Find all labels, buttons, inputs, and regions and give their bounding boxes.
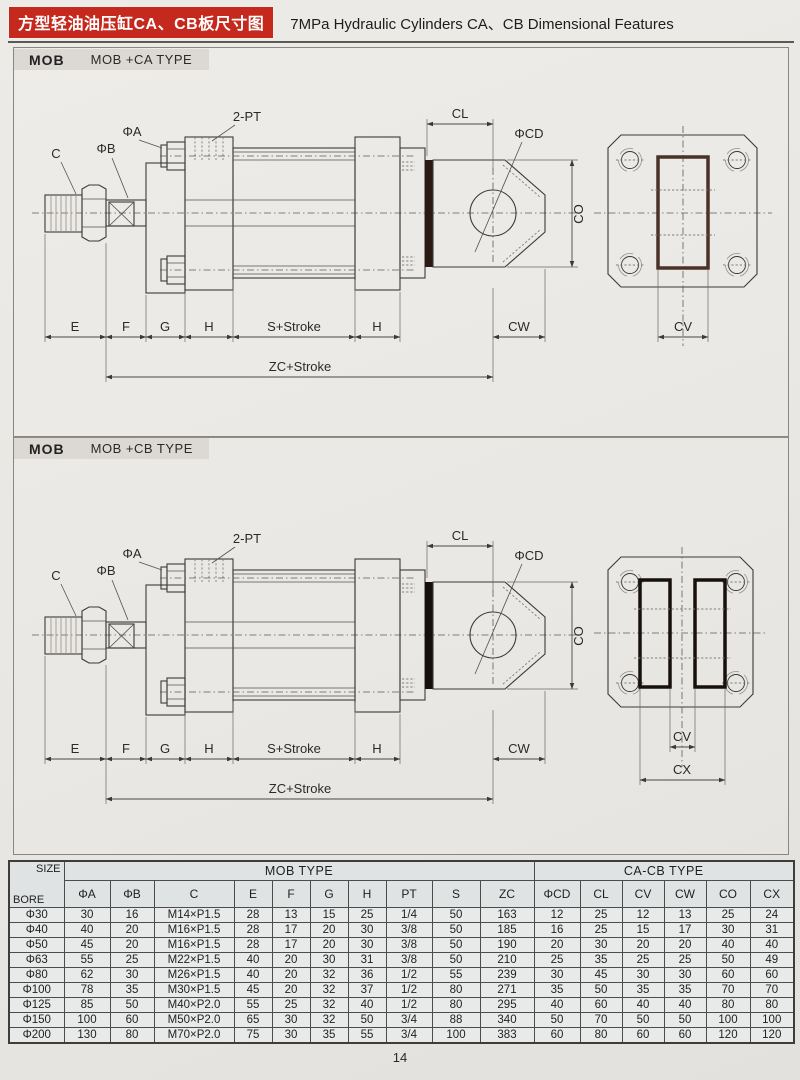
dim-cl: CL <box>452 106 469 121</box>
cell: 30 <box>580 938 622 953</box>
cell: 190 <box>480 938 534 953</box>
cell: M14×P1.5 <box>154 908 234 923</box>
cell: 20 <box>534 938 580 953</box>
cell: 340 <box>480 1013 534 1028</box>
cell: 12 <box>622 908 664 923</box>
cell: 100 <box>64 1013 110 1028</box>
bore-cell: Φ63 <box>9 953 64 968</box>
col-header: S <box>432 881 480 908</box>
label-phi-b: ΦB <box>96 563 115 578</box>
cell: 50 <box>348 1013 386 1028</box>
cell: 50 <box>432 923 480 938</box>
cell: 239 <box>480 968 534 983</box>
cell: 35 <box>622 983 664 998</box>
ca-type-diagram: C ΦB ΦA 2-PT ΦCD CL CO E F <box>14 48 788 437</box>
cell: 80 <box>110 1028 154 1044</box>
cell: 80 <box>432 998 480 1013</box>
dim-cx: CX <box>673 762 691 777</box>
cell: 40 <box>706 938 750 953</box>
cell: 20 <box>110 938 154 953</box>
cell: 40 <box>534 998 580 1013</box>
cell: 20 <box>310 938 348 953</box>
dim-g: G <box>160 319 170 334</box>
cell: 50 <box>432 953 480 968</box>
cell: M16×P1.5 <box>154 938 234 953</box>
ca-end-view: CV <box>594 126 772 346</box>
cell: 1/2 <box>386 998 432 1013</box>
cylinder-side-view-ca: C ΦB ΦA 2-PT ΦCD CL CO E F <box>32 106 586 382</box>
bolt-hole <box>616 149 644 172</box>
cell: 50 <box>664 1013 706 1028</box>
label-phi-a: ΦA <box>122 124 141 139</box>
dim-h: H <box>204 319 213 334</box>
cell: 60 <box>110 1013 154 1028</box>
cell: 1/4 <box>386 908 432 923</box>
col-header: CV <box>622 881 664 908</box>
cell: 3/8 <box>386 923 432 938</box>
section-cb-type: C ΦB ΦA 2-PT ΦCD CL CO E F G H <box>13 436 789 855</box>
table-row: Φ63 5525M22×P1.5402030313/85021025352525… <box>9 953 794 968</box>
cell: 17 <box>272 938 310 953</box>
cell: 25 <box>580 923 622 938</box>
label-2pt: 2-PT <box>233 109 261 124</box>
cell: 30 <box>310 953 348 968</box>
dim-cw: CW <box>508 319 530 334</box>
corner-size-label: SIZE <box>36 863 60 875</box>
cell: 24 <box>750 908 794 923</box>
cell: 28 <box>234 938 272 953</box>
cell: 28 <box>234 908 272 923</box>
corner-bore-label: BORE <box>13 894 44 906</box>
col-header: F <box>272 881 310 908</box>
cell: 25 <box>110 953 154 968</box>
page-title-en: 7MPa Hydraulic Cylinders CA、CB Dimension… <box>290 13 673 34</box>
group-header-mob-type: MOB TYPE <box>64 861 534 881</box>
col-header: E <box>234 881 272 908</box>
col-header: CL <box>580 881 622 908</box>
cb-plate-bar <box>425 582 433 689</box>
cell: 13 <box>664 908 706 923</box>
section-label-bar: MOB MOB +CB TYPE <box>14 438 209 459</box>
cell: 31 <box>348 953 386 968</box>
table-row: Φ80 6230M26×P1.5402032361/25523930453030… <box>9 968 794 983</box>
cell: 65 <box>234 1013 272 1028</box>
cell: 20 <box>110 923 154 938</box>
cell: 80 <box>750 998 794 1013</box>
page-header: 方型轻油油压缸CA、CB板尺寸图 7MPa Hydraulic Cylinder… <box>8 6 794 39</box>
bore-cell: Φ80 <box>9 968 64 983</box>
rod-thread-hatch <box>51 195 76 232</box>
cell: 70 <box>580 1013 622 1028</box>
col-header: ΦA <box>64 881 110 908</box>
dim-zc-stroke: ZC+Stroke <box>269 781 332 796</box>
cell: 25 <box>348 908 386 923</box>
bore-cell: Φ50 <box>9 938 64 953</box>
col-header: CO <box>706 881 750 908</box>
cell: 16 <box>534 923 580 938</box>
col-header: CW <box>664 881 706 908</box>
cell: 80 <box>432 983 480 998</box>
col-header: H <box>348 881 386 908</box>
cell: 100 <box>432 1028 480 1044</box>
label-c: C <box>51 146 60 161</box>
cell: 50 <box>580 983 622 998</box>
cell: 1/2 <box>386 968 432 983</box>
page-number: 14 <box>0 1050 800 1065</box>
dim-s-stroke: S+Stroke <box>267 741 321 756</box>
cell: 32 <box>310 968 348 983</box>
type-label: MOB +CA TYPE <box>91 52 193 67</box>
cell: 30 <box>622 968 664 983</box>
cell: 25 <box>664 953 706 968</box>
cell: 120 <box>706 1028 750 1044</box>
series-tag: MOB <box>29 441 65 457</box>
cell: 30 <box>272 1013 310 1028</box>
table-row: Φ150 10060M50×P2.0653032503/488340507050… <box>9 1013 794 1028</box>
dim-h: H <box>204 741 213 756</box>
cell: 17 <box>272 923 310 938</box>
cell: 20 <box>664 938 706 953</box>
cell: 15 <box>622 923 664 938</box>
cell: 40 <box>64 923 110 938</box>
port-hatch <box>195 559 223 582</box>
cell: 35 <box>664 983 706 998</box>
cell: 15 <box>310 908 348 923</box>
col-header: G <box>310 881 348 908</box>
bolt-hole <box>723 254 751 277</box>
cell: 50 <box>432 908 480 923</box>
cell: 49 <box>750 953 794 968</box>
cell: 60 <box>750 968 794 983</box>
cell: 31 <box>750 923 794 938</box>
cell: 60 <box>664 1028 706 1044</box>
dim-co: CO <box>571 204 586 224</box>
cb-plate-slot-right <box>695 580 725 687</box>
cell: 30 <box>272 1028 310 1044</box>
bolt-hole <box>723 149 751 172</box>
cell: 25 <box>622 953 664 968</box>
cell: 78 <box>64 983 110 998</box>
cell: 50 <box>432 938 480 953</box>
cell: 55 <box>234 998 272 1013</box>
cell: 60 <box>534 1028 580 1044</box>
cell: 185 <box>480 923 534 938</box>
cell: 70 <box>706 983 750 998</box>
cell: 32 <box>310 1013 348 1028</box>
cell: 25 <box>534 953 580 968</box>
cb-plate-slot-left <box>640 580 670 687</box>
label-2pt: 2-PT <box>233 531 261 546</box>
cell: 295 <box>480 998 534 1013</box>
cell: 60 <box>622 1028 664 1044</box>
label-phi-cd: ΦCD <box>514 126 543 141</box>
dim-f: F <box>122 319 130 334</box>
cell: 20 <box>272 968 310 983</box>
dim-cv: CV <box>674 319 692 334</box>
catalog-page: { "header": { "title_cn": "方型轻油油压缸CA、CB板… <box>0 0 800 1080</box>
cell: 3/8 <box>386 953 432 968</box>
cell: 3/4 <box>386 1028 432 1044</box>
cell: 50 <box>706 953 750 968</box>
dim-g: G <box>160 741 170 756</box>
cell: 100 <box>750 1013 794 1028</box>
cell: 75 <box>234 1028 272 1044</box>
cell: 1/2 <box>386 983 432 998</box>
series-tag: MOB <box>29 52 65 68</box>
cell: 55 <box>432 968 480 983</box>
label-phi-cd: ΦCD <box>514 548 543 563</box>
table-row: Φ30 3016M14×P1.5281315251/45016312251213… <box>9 908 794 923</box>
col-header: C <box>154 881 234 908</box>
dim-s-stroke: S+Stroke <box>267 319 321 334</box>
cell: 35 <box>310 1028 348 1044</box>
cell: 85 <box>64 998 110 1013</box>
cell: M26×P1.5 <box>154 968 234 983</box>
cell: 25 <box>706 908 750 923</box>
cell: 55 <box>64 953 110 968</box>
section-label-bar: MOB MOB +CA TYPE <box>14 49 209 70</box>
bore-cell: Φ150 <box>9 1013 64 1028</box>
port-hatch <box>195 137 223 160</box>
cell: 20 <box>272 953 310 968</box>
cell: 50 <box>110 998 154 1013</box>
table-row: Φ40 4020M16×P1.5281720303/85018516251517… <box>9 923 794 938</box>
dim-cv: CV <box>673 729 691 744</box>
col-header: ΦCD <box>534 881 580 908</box>
cell: 383 <box>480 1028 534 1044</box>
cell: 30 <box>348 938 386 953</box>
cell: 70 <box>750 983 794 998</box>
cell: 62 <box>64 968 110 983</box>
cell: 50 <box>534 1013 580 1028</box>
cell: 36 <box>348 968 386 983</box>
cell: 55 <box>348 1028 386 1044</box>
cell: M16×P1.5 <box>154 923 234 938</box>
dim-zc-stroke: ZC+Stroke <box>269 359 332 374</box>
type-label: MOB +CB TYPE <box>91 441 193 456</box>
dim-e: E <box>71 319 80 334</box>
table-row: Φ50 4520M16×P1.5281720303/85019020302020… <box>9 938 794 953</box>
cell: 3/8 <box>386 938 432 953</box>
cell: 40 <box>750 938 794 953</box>
cell: 40 <box>234 953 272 968</box>
cell: 120 <box>750 1028 794 1044</box>
cell: 16 <box>110 908 154 923</box>
group-header-ca-cb-type: CA-CB TYPE <box>534 861 794 881</box>
dim-f: F <box>122 741 130 756</box>
cell: 30 <box>348 923 386 938</box>
cylinder-side-view-cb: C ΦB ΦA 2-PT ΦCD CL CO E F G H <box>32 528 586 804</box>
rod-thread-hatch <box>51 617 76 654</box>
cell: 37 <box>348 983 386 998</box>
cell: 30 <box>534 968 580 983</box>
col-header: CX <box>750 881 794 908</box>
cell: M50×P2.0 <box>154 1013 234 1028</box>
dim-e: E <box>71 741 80 756</box>
dim-co: CO <box>571 626 586 646</box>
cell: 13 <box>272 908 310 923</box>
label-phi-a: ΦA <box>122 546 141 561</box>
cell: 50 <box>622 1013 664 1028</box>
cb-type-diagram: C ΦB ΦA 2-PT ΦCD CL CO E F G H <box>14 437 788 854</box>
label-phi-b: ΦB <box>96 141 115 156</box>
dimension-table: SIZE BORE MOB TYPE CA-CB TYPE ΦA ΦB C E … <box>8 860 795 1044</box>
cell: 60 <box>580 998 622 1013</box>
table-row: Φ200 13080M70×P2.0753035553/410038360806… <box>9 1028 794 1044</box>
wrench-flat-cross <box>109 202 134 226</box>
cell: 130 <box>64 1028 110 1044</box>
cell: 45 <box>234 983 272 998</box>
cell: 163 <box>480 908 534 923</box>
cell: 20 <box>622 938 664 953</box>
cell: M22×P1.5 <box>154 953 234 968</box>
cell: 60 <box>706 968 750 983</box>
cell: 210 <box>480 953 534 968</box>
bore-cell: Φ100 <box>9 983 64 998</box>
cell: M70×P2.0 <box>154 1028 234 1044</box>
cell: 100 <box>706 1013 750 1028</box>
cell: 12 <box>534 908 580 923</box>
cell: 30 <box>664 968 706 983</box>
bore-cell: Φ30 <box>9 908 64 923</box>
table-row: Φ125 8550M40×P2.0552532401/2802954060404… <box>9 998 794 1013</box>
wrench-flat-cross <box>109 624 134 648</box>
cell: 40 <box>348 998 386 1013</box>
bore-cell: Φ125 <box>9 998 64 1013</box>
dim-h2: H <box>372 741 381 756</box>
cell: 40 <box>622 998 664 1013</box>
table-corner-cell: SIZE BORE <box>9 861 64 908</box>
dim-cw: CW <box>508 741 530 756</box>
cell: 40 <box>664 998 706 1013</box>
cell: 271 <box>480 983 534 998</box>
cell: 88 <box>432 1013 480 1028</box>
cell: 3/4 <box>386 1013 432 1028</box>
cell: 80 <box>706 998 750 1013</box>
cell: 80 <box>580 1028 622 1044</box>
cell: 17 <box>664 923 706 938</box>
cell: M40×P2.0 <box>154 998 234 1013</box>
ca-plate-bar <box>425 160 433 267</box>
col-header: ZC <box>480 881 534 908</box>
bore-cell: Φ200 <box>9 1028 64 1044</box>
cell: 35 <box>110 983 154 998</box>
page-title-cn: 方型轻油油压缸CA、CB板尺寸图 <box>8 6 274 39</box>
header-divider <box>8 41 794 43</box>
cell: 32 <box>310 983 348 998</box>
cell: 35 <box>534 983 580 998</box>
col-header: ΦB <box>110 881 154 908</box>
cell: 30 <box>706 923 750 938</box>
cell: M30×P1.5 <box>154 983 234 998</box>
bolt-hole <box>616 254 644 277</box>
cell: 45 <box>580 968 622 983</box>
dim-cl: CL <box>452 528 469 543</box>
cell: 20 <box>310 923 348 938</box>
dim-h2: H <box>372 319 381 334</box>
cb-end-view: CV CX <box>594 547 766 785</box>
cell: 45 <box>64 938 110 953</box>
cell: 20 <box>272 983 310 998</box>
cell: 30 <box>110 968 154 983</box>
label-c: C <box>51 568 60 583</box>
cell: 40 <box>234 968 272 983</box>
cell: 28 <box>234 923 272 938</box>
section-ca-type: C ΦB ΦA 2-PT ΦCD CL CO E F <box>13 47 789 438</box>
cell: 25 <box>580 908 622 923</box>
cell: 30 <box>64 908 110 923</box>
cell: 32 <box>310 998 348 1013</box>
col-header: PT <box>386 881 432 908</box>
cell: 25 <box>272 998 310 1013</box>
cell: 35 <box>580 953 622 968</box>
table-row: Φ100 7835M30×P1.5452032371/2802713550353… <box>9 983 794 998</box>
bore-cell: Φ40 <box>9 923 64 938</box>
